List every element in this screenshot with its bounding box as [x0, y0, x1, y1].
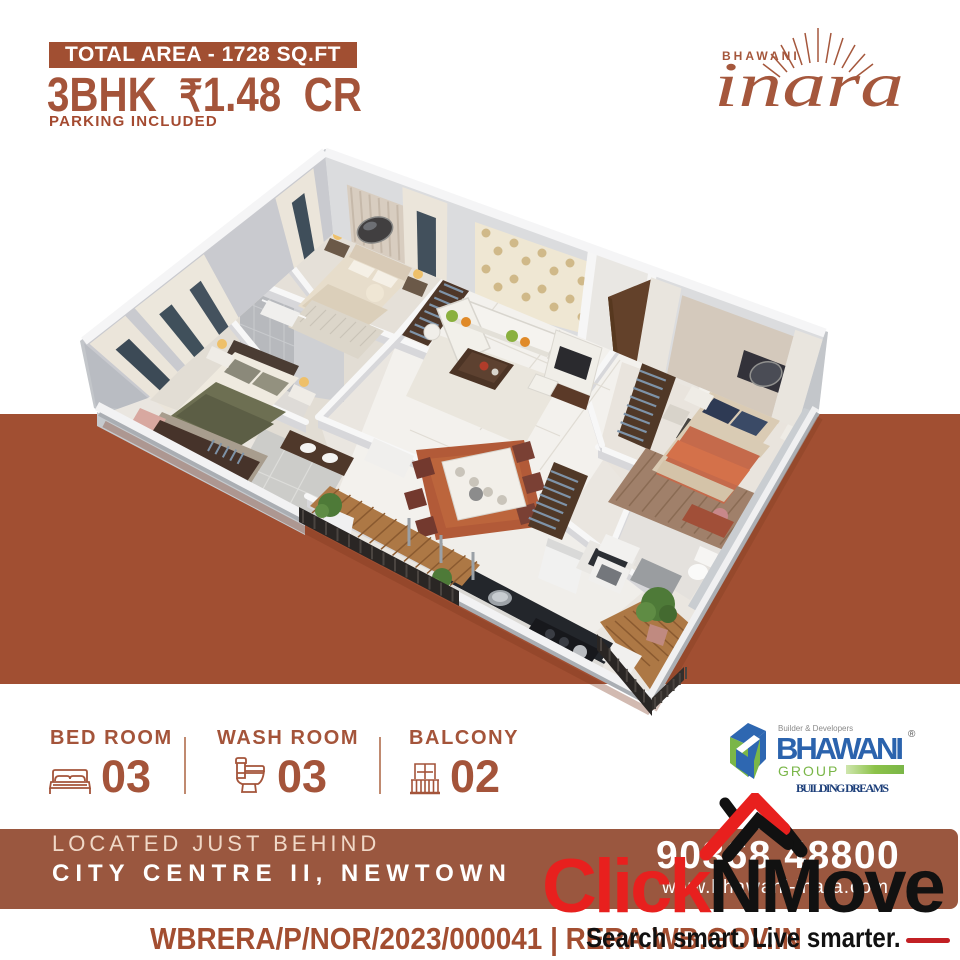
- svg-text:GROUP: GROUP: [778, 763, 839, 779]
- svg-text:BHAWANI: BHAWANI: [776, 731, 904, 766]
- svg-text:®: ®: [908, 729, 916, 740]
